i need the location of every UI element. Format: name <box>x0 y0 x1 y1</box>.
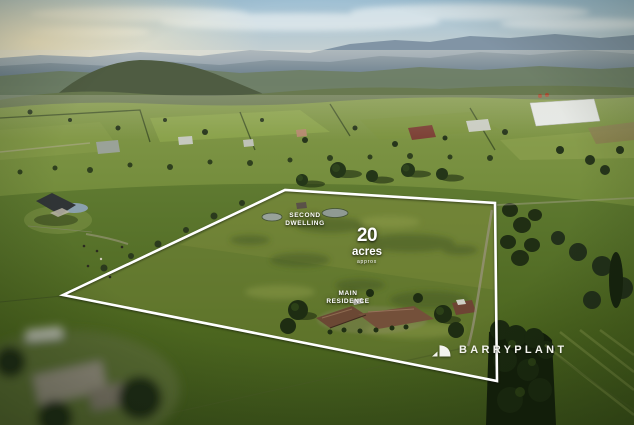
acreage-unit: acres <box>327 246 407 258</box>
agency-name: BARRYPLANT <box>459 342 567 358</box>
acreage-qualifier: approx <box>327 258 407 266</box>
second-dwelling-line1: SECOND <box>270 212 340 220</box>
agency-logo: BARRYPLANT <box>432 341 567 358</box>
listing-photo: SECOND DWELLING 20 acres approx MAIN RES… <box>0 0 634 425</box>
main-residence-line2: RESIDENCE <box>313 298 383 306</box>
barry-plant-sail-icon <box>432 341 454 358</box>
acreage-value: 20 <box>327 226 407 245</box>
main-residence-label: MAIN RESIDENCE <box>313 290 383 305</box>
acreage-label: 20 acres approx <box>327 226 407 266</box>
second-dwelling-label: SECOND DWELLING <box>270 212 340 227</box>
main-residence-line1: MAIN <box>313 290 383 298</box>
